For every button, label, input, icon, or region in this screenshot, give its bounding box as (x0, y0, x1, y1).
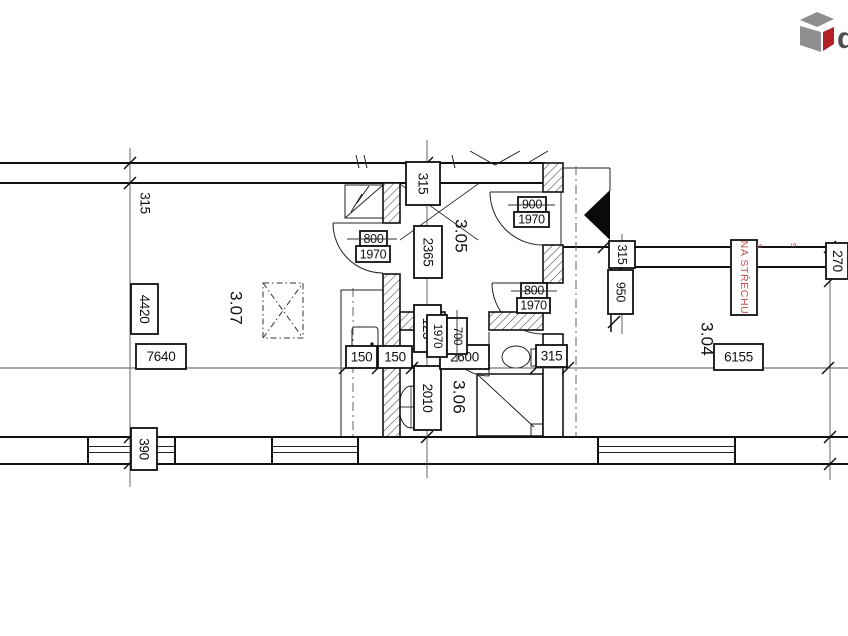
door-living-height: 1970 (360, 248, 387, 262)
floor-plan-canvas: 315 4420 7640 390 315 2365 125 2010 150 … (0, 0, 848, 636)
dim-shaft-wall: 315 (615, 245, 629, 265)
door-bathroom-height: 1970 (431, 324, 443, 348)
window-bottom-middle (272, 437, 358, 464)
dim-shaft-opening: 950 (614, 282, 628, 302)
dim-attic-width: 6155 (724, 350, 753, 365)
door-bathroom-width: 700 (451, 327, 463, 345)
room-labels: 3.07 3.05 3.06 3.04 (227, 219, 717, 414)
logo-lid (800, 12, 834, 27)
red-mark-right: s (789, 243, 799, 248)
shower-icon (477, 374, 543, 436)
section-marker-triangle (584, 190, 610, 240)
skylight-symbol-living (263, 283, 303, 338)
top-exterior-wall (0, 155, 545, 183)
room-label-bathroom: 3.06 (450, 380, 469, 414)
roof-access-text: NA STŘECHU (738, 241, 751, 315)
roof-window-icon (345, 185, 383, 218)
room-label-attic: 3.04 (698, 322, 717, 356)
red-mark-left: s (755, 244, 765, 249)
window-bottom-right (598, 437, 735, 464)
logo-letter: d (837, 22, 848, 55)
dim-counter-left: 150 (351, 350, 373, 365)
door-hall-upper-width: 900 (522, 198, 542, 212)
floor-plan-drawing: 315 4420 7640 390 315 2365 125 2010 150 … (0, 0, 848, 636)
dim-left-height: 4420 (137, 295, 152, 324)
logo-red-face (823, 27, 834, 51)
logo: d (800, 12, 848, 55)
door-hall-upper-height: 1970 (518, 213, 545, 227)
dim-left-width: 7640 (147, 349, 176, 364)
dim-left-sill: 390 (137, 438, 152, 460)
dim-bath-wall: 315 (541, 349, 563, 364)
door-hall-lower-height: 1970 (520, 299, 547, 313)
dim-hall-length: 2365 (421, 238, 436, 267)
door-living-width: 800 (364, 232, 384, 246)
room-label-living: 3.07 (227, 291, 246, 325)
partition-wall-living-hall (383, 183, 400, 437)
dim-left-wall: 315 (138, 192, 153, 214)
attic-wing-top-wall (545, 168, 848, 332)
roof-access-annotation: NA STŘECHU s s (731, 240, 799, 315)
dim-bath-length: 2010 (420, 384, 435, 413)
dim-right-edge: 270 (830, 250, 845, 272)
room-label-hall: 3.05 (452, 219, 471, 253)
dim-hall-wall-top: 315 (416, 173, 431, 195)
dim-counter-right: 150 (384, 350, 406, 365)
logo-gray-face (800, 26, 821, 52)
door-hall-lower-width: 800 (524, 284, 544, 298)
